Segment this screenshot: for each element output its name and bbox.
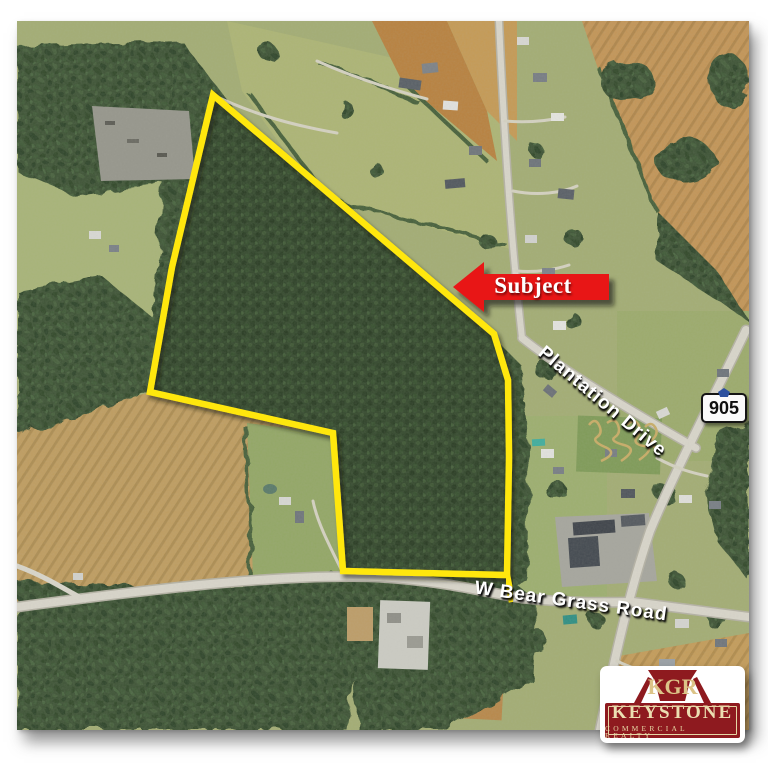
photo-grain: [17, 21, 749, 730]
keystone-banner: KEYSTONE COMMERCIAL REALTY: [605, 703, 740, 738]
aerial-photo: Subject Plantation Drive W Bear Grass Ro…: [17, 21, 749, 730]
route-number: 905: [709, 399, 739, 417]
keystone-emblem-icon: KGR: [604, 668, 741, 703]
route-905-shield: 905: [701, 393, 747, 423]
company-name: KEYSTONE: [612, 703, 733, 722]
company-tagline: COMMERCIAL REALTY: [605, 725, 740, 740]
keystone-monogram: KGR: [647, 674, 698, 699]
keystone-logo: KGR KEYSTONE COMMERCIAL REALTY: [600, 666, 745, 743]
aerial-imagery: [17, 21, 749, 730]
